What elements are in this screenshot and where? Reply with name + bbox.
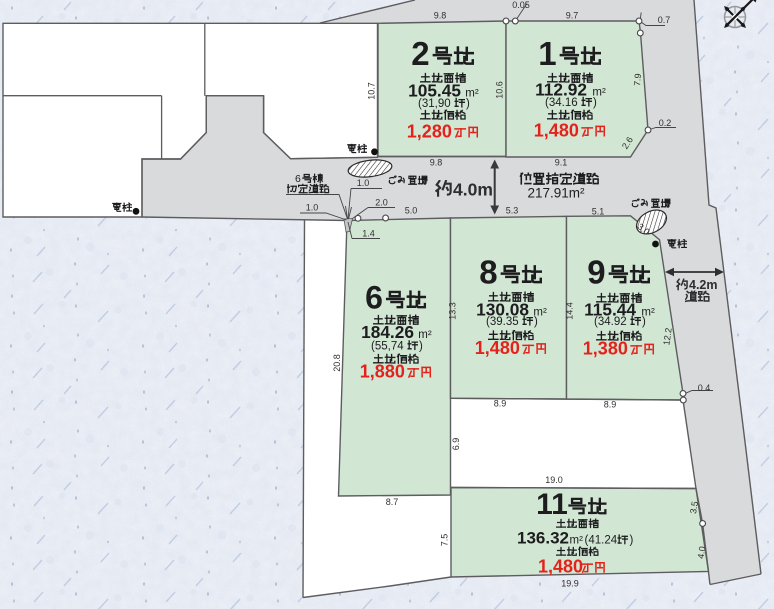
svg-text:m²: m² — [570, 535, 584, 547]
svg-text:9: 9 — [587, 254, 605, 291]
svg-text:0.2: 0.2 — [659, 118, 672, 128]
svg-text:14.4: 14.4 — [564, 302, 574, 320]
svg-text:): ) — [466, 98, 470, 110]
svg-text:(39.35: (39.35 — [486, 316, 519, 328]
svg-text:1.4: 1.4 — [362, 229, 375, 239]
svg-text:7.9: 7.9 — [632, 73, 643, 86]
svg-text:1,880: 1,880 — [360, 362, 405, 382]
svg-text:217.91m²: 217.91m² — [527, 186, 585, 201]
svg-text:4.0: 4.0 — [696, 546, 708, 560]
svg-text:20.8: 20.8 — [332, 354, 342, 372]
svg-text:136.32: 136.32 — [517, 529, 569, 548]
svg-text:10.7: 10.7 — [367, 82, 377, 100]
svg-text:0.05: 0.05 — [512, 0, 530, 10]
svg-text:): ) — [419, 341, 423, 353]
svg-text:5.0: 5.0 — [405, 206, 418, 216]
svg-text:1: 1 — [538, 35, 556, 72]
svg-text:1,480: 1,480 — [475, 338, 520, 358]
svg-text:1,280: 1,280 — [407, 122, 452, 142]
svg-text:9.7: 9.7 — [566, 11, 579, 21]
svg-text:): ) — [534, 316, 538, 328]
svg-text:1,480: 1,480 — [538, 557, 583, 577]
svg-text:9.8: 9.8 — [430, 158, 443, 168]
svg-text:8.7: 8.7 — [386, 497, 399, 507]
svg-text:m²: m² — [418, 329, 432, 341]
svg-text:8.9: 8.9 — [494, 399, 507, 409]
svg-text:2.0: 2.0 — [375, 198, 388, 208]
svg-text:(34.92: (34.92 — [594, 316, 627, 328]
svg-text:(55,74: (55,74 — [371, 341, 404, 353]
svg-text:1,380: 1,380 — [583, 339, 628, 359]
svg-text:8: 8 — [479, 254, 497, 291]
svg-text:5.3: 5.3 — [506, 206, 519, 216]
svg-text:2: 2 — [411, 35, 429, 72]
svg-text:1,480: 1,480 — [534, 121, 579, 141]
svg-text:7.5: 7.5 — [440, 534, 450, 547]
svg-text:0.4: 0.4 — [698, 383, 711, 393]
svg-text:(41.24: (41.24 — [585, 535, 618, 547]
svg-text:19.9: 19.9 — [561, 579, 579, 589]
svg-text:(31,90: (31,90 — [418, 98, 451, 110]
svg-text:0.7: 0.7 — [658, 15, 671, 25]
svg-text:9.1: 9.1 — [555, 158, 568, 168]
svg-text:4.2m: 4.2m — [689, 278, 718, 292]
svg-text:8.9: 8.9 — [604, 400, 617, 410]
svg-text:6: 6 — [365, 280, 383, 316]
svg-text:6.9: 6.9 — [451, 438, 461, 451]
svg-text:1.0: 1.0 — [357, 178, 370, 188]
svg-text:184.26: 184.26 — [361, 322, 414, 342]
svg-text:): ) — [642, 316, 646, 328]
svg-text:6: 6 — [295, 173, 301, 185]
svg-text:): ) — [593, 97, 597, 109]
svg-text:11: 11 — [536, 488, 568, 521]
svg-text:1.0: 1.0 — [306, 203, 319, 213]
svg-text:19.0: 19.0 — [545, 475, 563, 485]
svg-text:5.1: 5.1 — [592, 207, 605, 217]
svg-text:13.3: 13.3 — [448, 302, 458, 320]
svg-text:10.6: 10.6 — [495, 81, 505, 99]
svg-text:4.0m: 4.0m — [453, 180, 493, 200]
svg-text:(34.16: (34.16 — [545, 97, 578, 109]
svg-text:3.5: 3.5 — [688, 501, 700, 515]
svg-text:9.8: 9.8 — [434, 11, 447, 21]
svg-text:): ) — [630, 535, 634, 547]
